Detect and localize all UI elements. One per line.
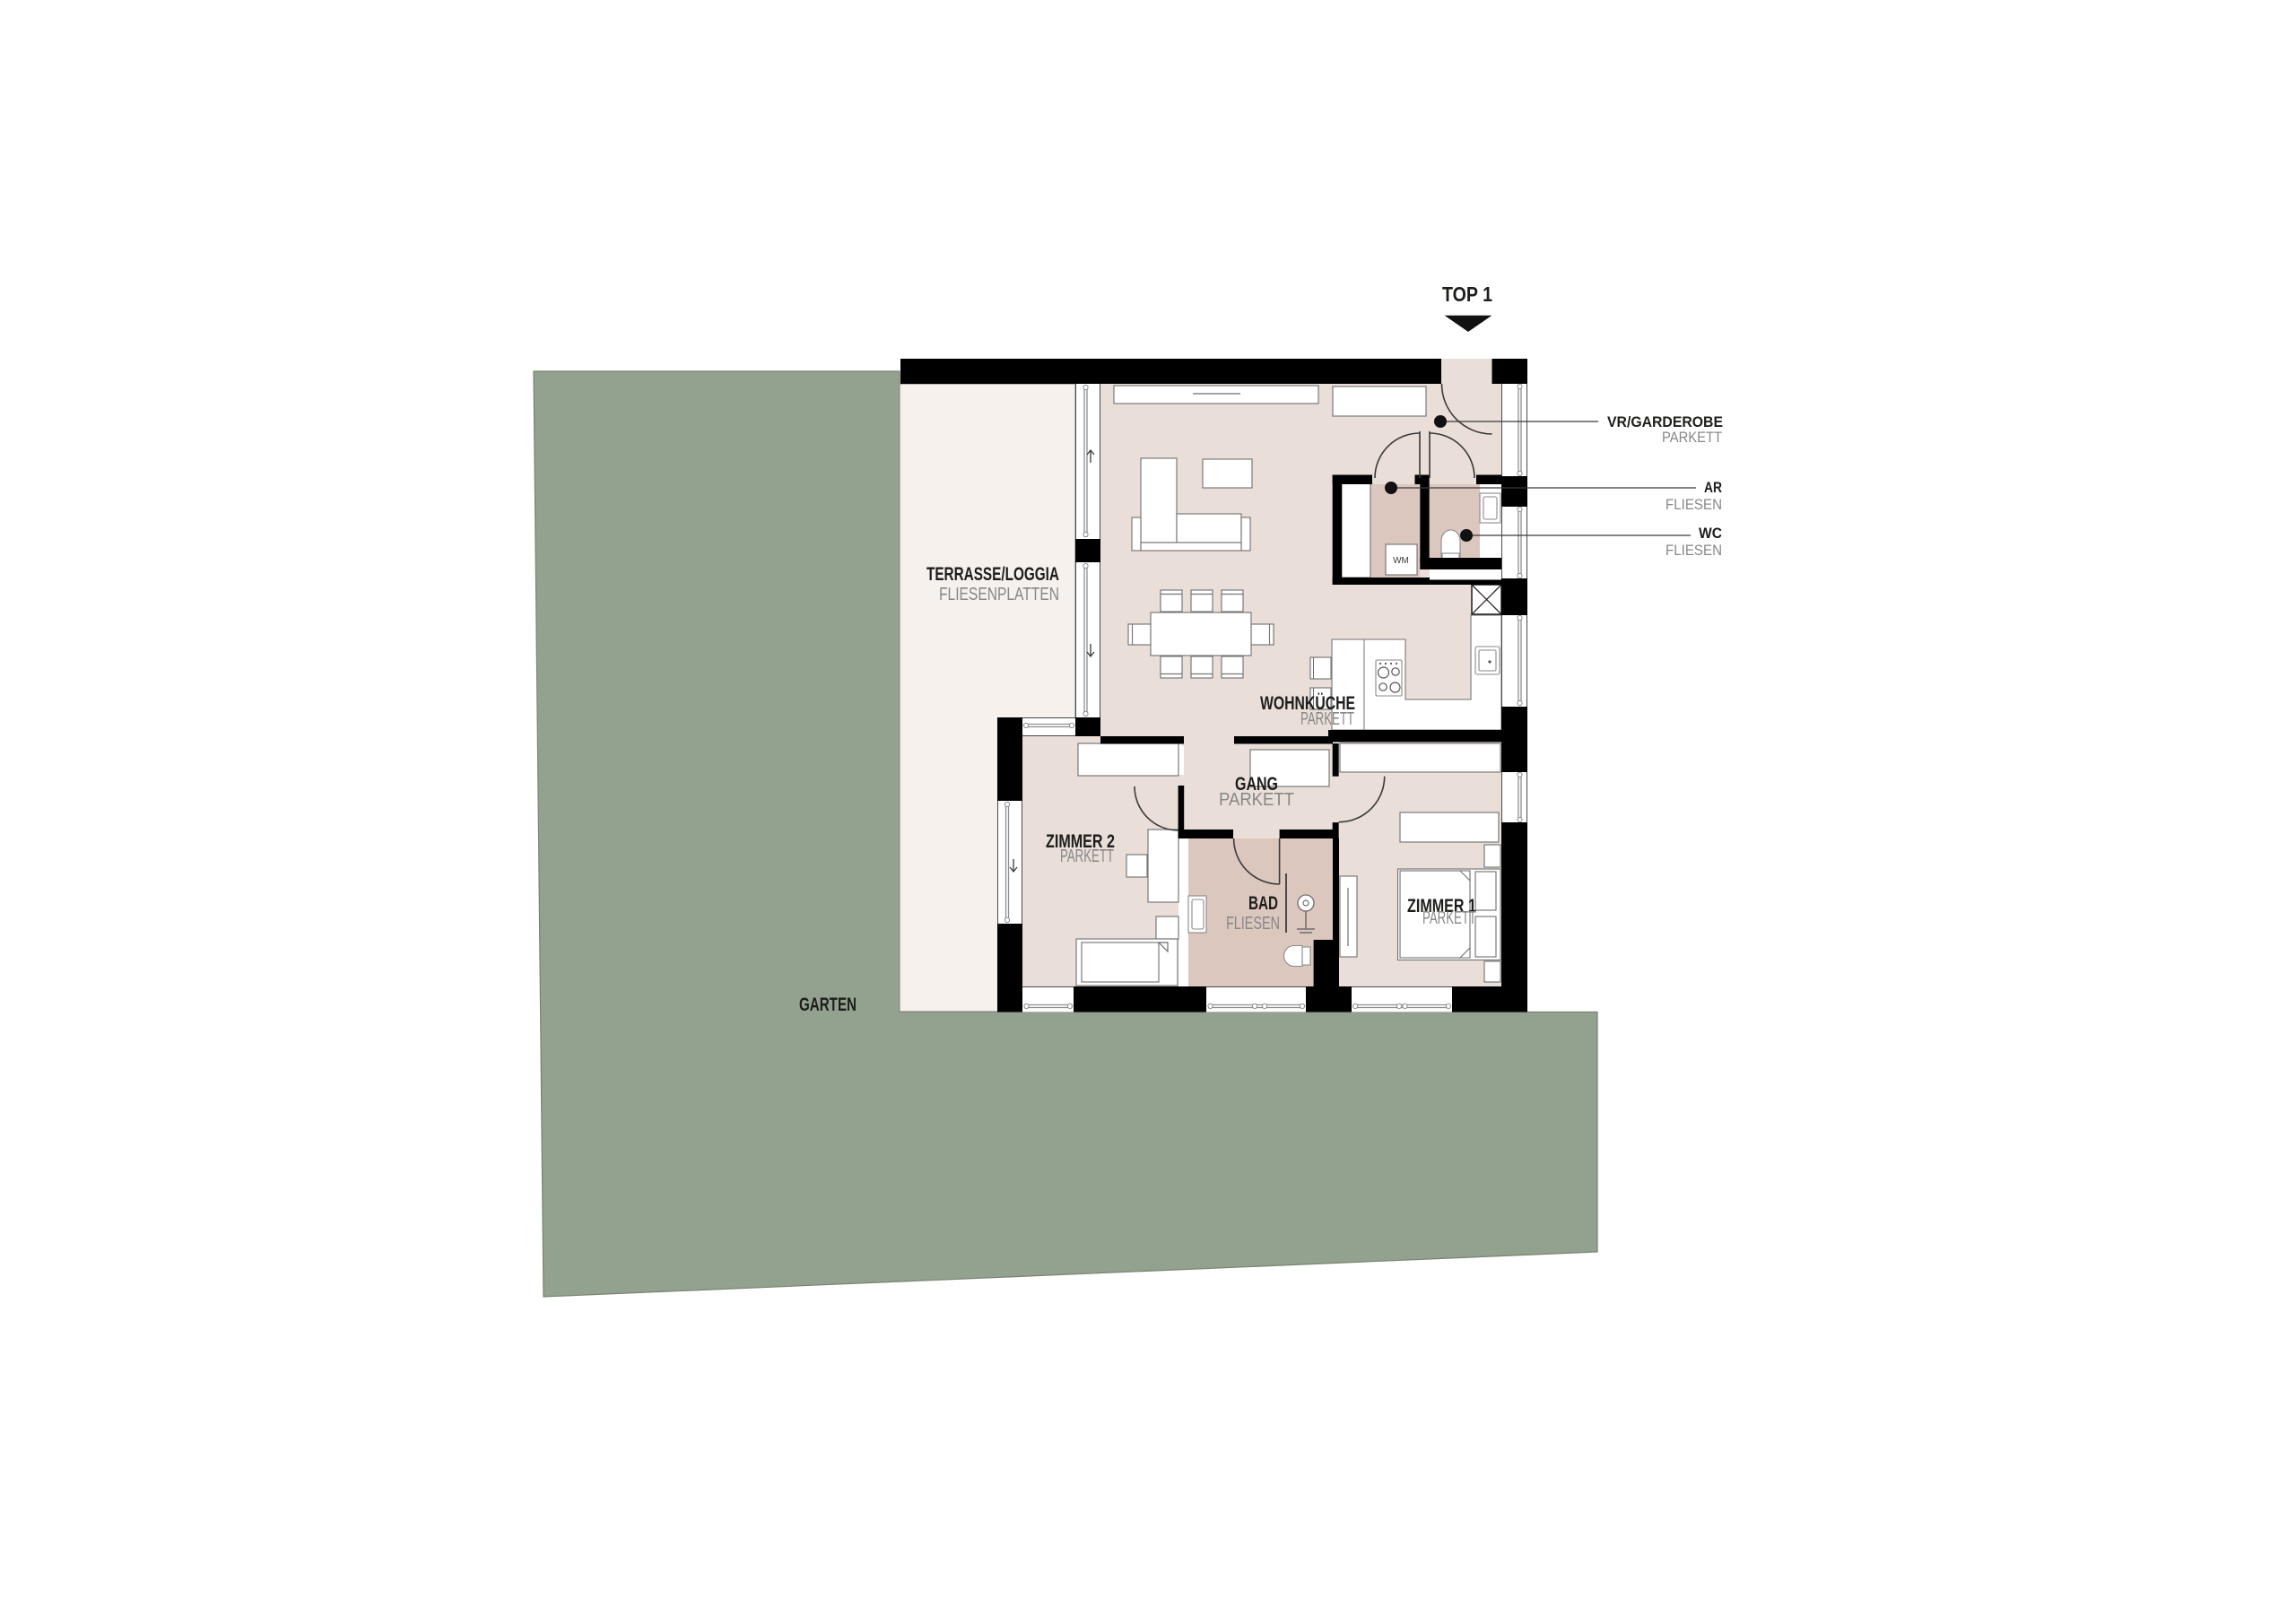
svg-text:AR: AR	[1704, 479, 1722, 496]
svg-text:TOP 1: TOP 1	[1442, 282, 1492, 306]
svg-text:GARTEN: GARTEN	[799, 995, 857, 1015]
svg-text:PARKETT: PARKETT	[1662, 429, 1722, 446]
svg-text:PARKETT: PARKETT	[1060, 847, 1114, 866]
svg-text:PARKETT: PARKETT	[1422, 908, 1476, 928]
svg-text:FLIESEN: FLIESEN	[1226, 914, 1280, 934]
svg-text:BAD: BAD	[1248, 893, 1278, 914]
svg-text:TERRASSE/LOGGIA: TERRASSE/LOGGIA	[926, 564, 1059, 585]
svg-text:PARKETT: PARKETT	[1300, 709, 1354, 729]
svg-text:FLIESEN: FLIESEN	[1665, 542, 1722, 559]
svg-text:PARKETT: PARKETT	[1219, 790, 1294, 810]
svg-text:WC: WC	[1699, 525, 1722, 542]
svg-text:FLIESEN: FLIESEN	[1665, 496, 1722, 513]
svg-text:FLIESENPLATTEN: FLIESENPLATTEN	[939, 585, 1059, 604]
svg-text:WM: WM	[1393, 556, 1409, 566]
